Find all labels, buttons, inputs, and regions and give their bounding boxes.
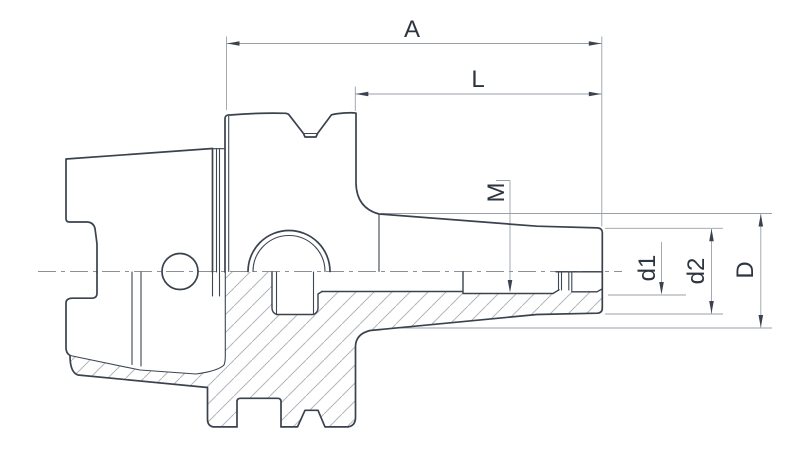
dim-label-D: D [732, 261, 759, 278]
dim-label-d2: d2 [683, 258, 710, 285]
arrowhead [709, 229, 714, 242]
arrowhead [589, 92, 602, 97]
arrowhead [709, 301, 714, 314]
dim-label-A: A [404, 16, 420, 43]
dim-label-M: M [483, 183, 510, 203]
technical-drawing-canvas: A L M d1 d2 D [0, 0, 812, 452]
arrowhead [759, 315, 764, 328]
arrowhead [589, 41, 602, 46]
shank-end-lines-lower [213, 272, 220, 296]
section-hatching [70, 272, 602, 427]
shank-upper-profile [66, 149, 213, 273]
collet-pocket [272, 272, 322, 315]
dim-label-d1: d1 [634, 255, 661, 282]
arrowhead [508, 280, 513, 293]
coolant-dome-arc-outer [248, 231, 330, 272]
arrowhead [356, 92, 369, 97]
arrowhead [659, 282, 664, 295]
coolant-dome-arc-inner [253, 236, 325, 272]
bore-relief-grooves [559, 272, 572, 292]
hatch-region [70, 272, 602, 427]
flange-upper-profile [225, 113, 602, 272]
dimension-labels: A L M d1 d2 D [404, 16, 759, 284]
shank-end-lines [213, 149, 226, 273]
clamp-slot-lines [132, 272, 141, 366]
collet-pocket-inner-lines [277, 272, 314, 314]
dim-label-L: L [471, 66, 484, 93]
arrowhead [759, 214, 764, 227]
part-outline-upper [66, 113, 602, 290]
tool-holder-drawing: A L M d1 d2 D [0, 0, 812, 452]
flange-keyway-slot [237, 398, 281, 427]
arrowhead [227, 41, 240, 46]
shank-bore-boundary [70, 272, 225, 374]
